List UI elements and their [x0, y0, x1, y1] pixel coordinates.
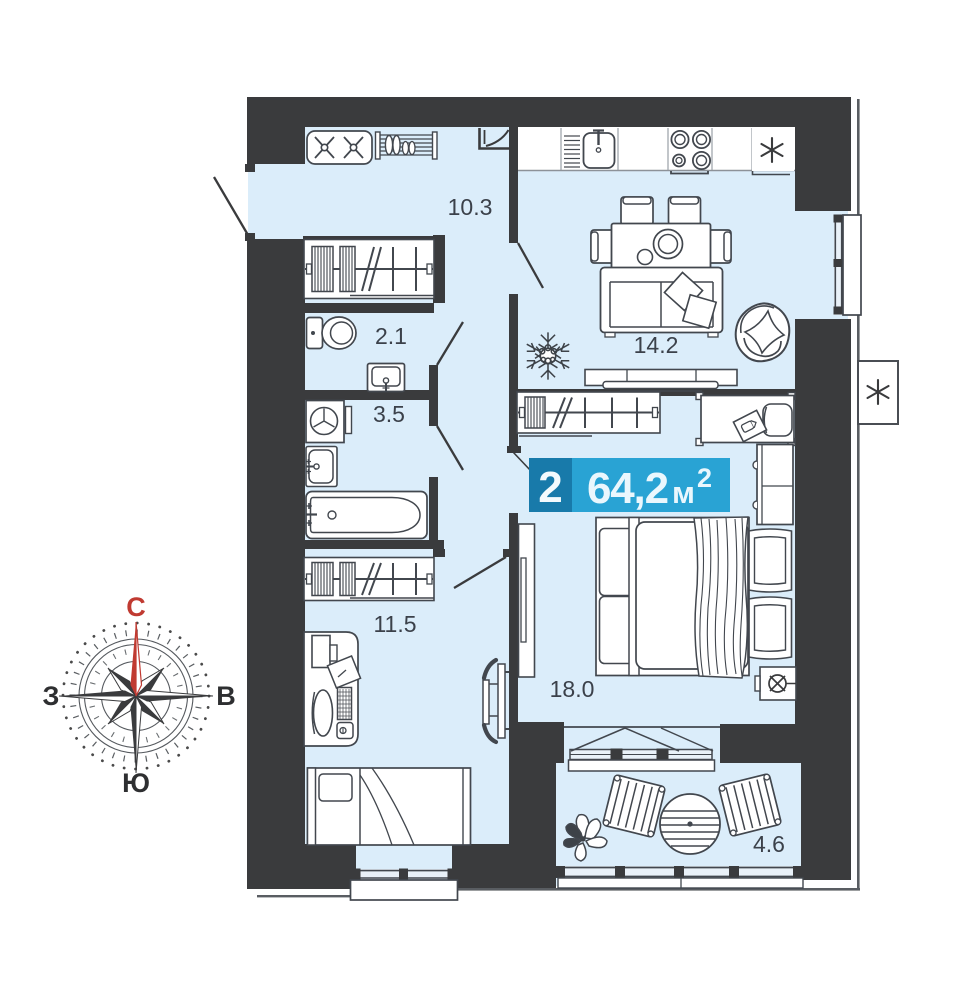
svg-text:2: 2	[697, 463, 712, 493]
svg-text:14.2: 14.2	[634, 332, 679, 358]
svg-text:3.5: 3.5	[373, 401, 405, 427]
svg-text:С: С	[126, 592, 146, 622]
svg-text:2.1: 2.1	[375, 323, 407, 349]
svg-text:2: 2	[538, 463, 562, 512]
svg-text:З: З	[43, 681, 60, 711]
svg-text:В: В	[216, 681, 236, 711]
svg-text:10.3: 10.3	[448, 194, 493, 220]
svg-text:11.5: 11.5	[373, 611, 416, 637]
svg-text:64,2: 64,2	[587, 464, 668, 513]
svg-text:м: м	[672, 475, 695, 510]
svg-text:Ю: Ю	[122, 768, 150, 798]
svg-text:18.0: 18.0	[550, 676, 595, 702]
svg-text:4.6: 4.6	[753, 831, 785, 857]
